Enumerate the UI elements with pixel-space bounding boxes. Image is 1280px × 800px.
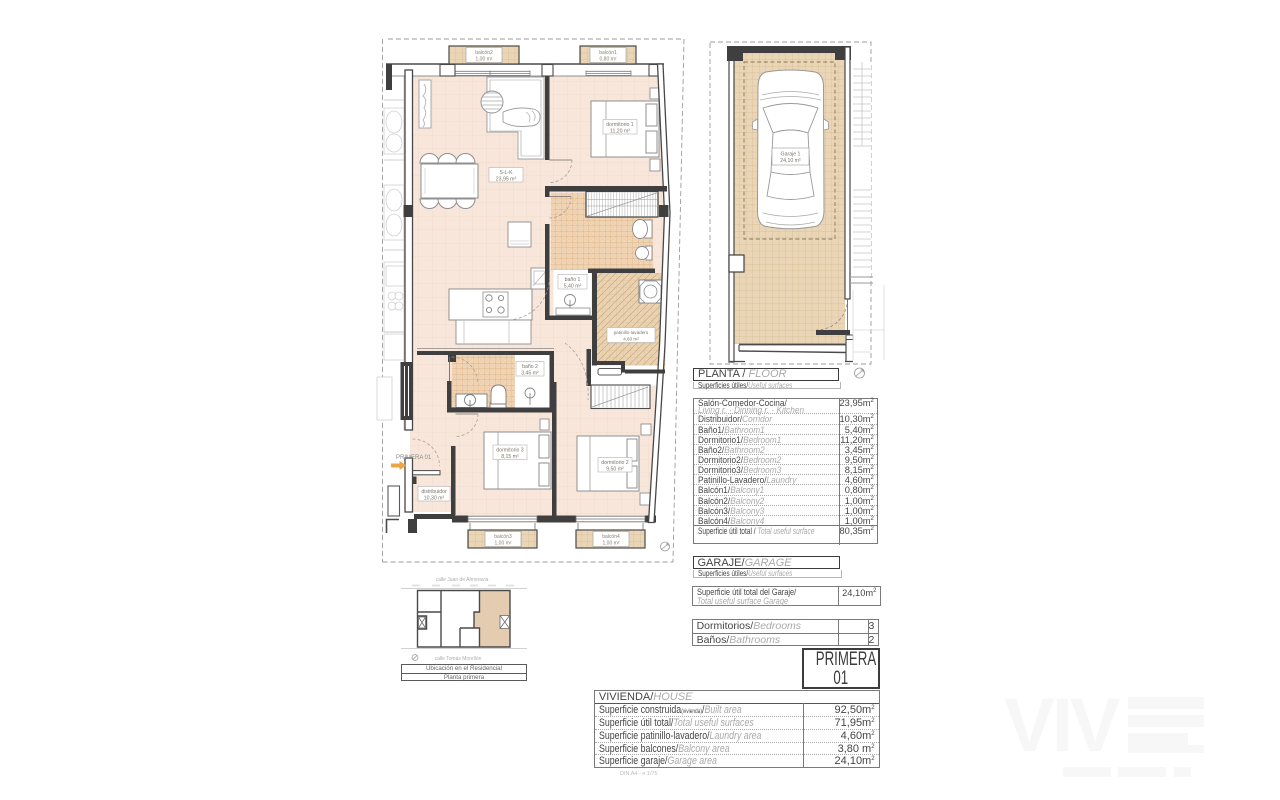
svg-text:dormitorio 2: dormitorio 2 <box>601 460 629 466</box>
svg-text:10,30 m²: 10,30 m² <box>424 496 445 502</box>
svg-text:4,60 m²: 4,60 m² <box>623 337 639 342</box>
svg-text:1,00 m²: 1,00 m² <box>603 541 620 547</box>
svg-text:1,00 m²: 1,00 m² <box>495 541 512 547</box>
svg-text:dormitorio 3: dormitorio 3 <box>496 448 524 454</box>
svg-text:Garaje 1: Garaje 1 <box>781 152 801 158</box>
svg-text:balcón3: balcón3 <box>494 534 512 540</box>
svg-text:balcón1: balcón1 <box>599 50 617 56</box>
svg-text:3,45 m²: 3,45 m² <box>521 371 539 377</box>
svg-text:balcón2: balcón2 <box>475 50 493 56</box>
svg-text:balcón4: balcón4 <box>602 534 620 540</box>
svg-text:24,10 m²: 24,10 m² <box>780 158 801 164</box>
svg-text:S-L-K: S-L-K <box>499 170 513 176</box>
svg-text:patinillo-lavadero: patinillo-lavadero <box>614 330 649 335</box>
svg-text:VIV: VIV <box>1004 683 1121 768</box>
svg-text:5,40 m²: 5,40 m² <box>564 284 582 290</box>
svg-text:dormitorio 1: dormitorio 1 <box>606 122 634 128</box>
svg-text:11,20 m²: 11,20 m² <box>610 129 630 135</box>
svg-text:1,00 m²: 1,00 m² <box>476 57 493 63</box>
svg-text:8,15 m²: 8,15 m² <box>501 454 519 460</box>
svg-text:calle Juan de Almoravia: calle Juan de Almoravia <box>436 577 489 583</box>
svg-text:baño 1: baño 1 <box>565 277 581 283</box>
svg-text:calle Tomás Morellón: calle Tomás Morellón <box>435 656 482 662</box>
svg-text:distribuidor: distribuidor <box>421 489 447 495</box>
svg-text:0,80 m²: 0,80 m² <box>600 57 617 63</box>
svg-text:PRIMERA 01: PRIMERA 01 <box>396 455 432 461</box>
svg-text:9,50 m²: 9,50 m² <box>606 467 624 473</box>
svg-text:baño 2: baño 2 <box>522 364 538 370</box>
svg-text:23,95 m²: 23,95 m² <box>496 177 517 183</box>
